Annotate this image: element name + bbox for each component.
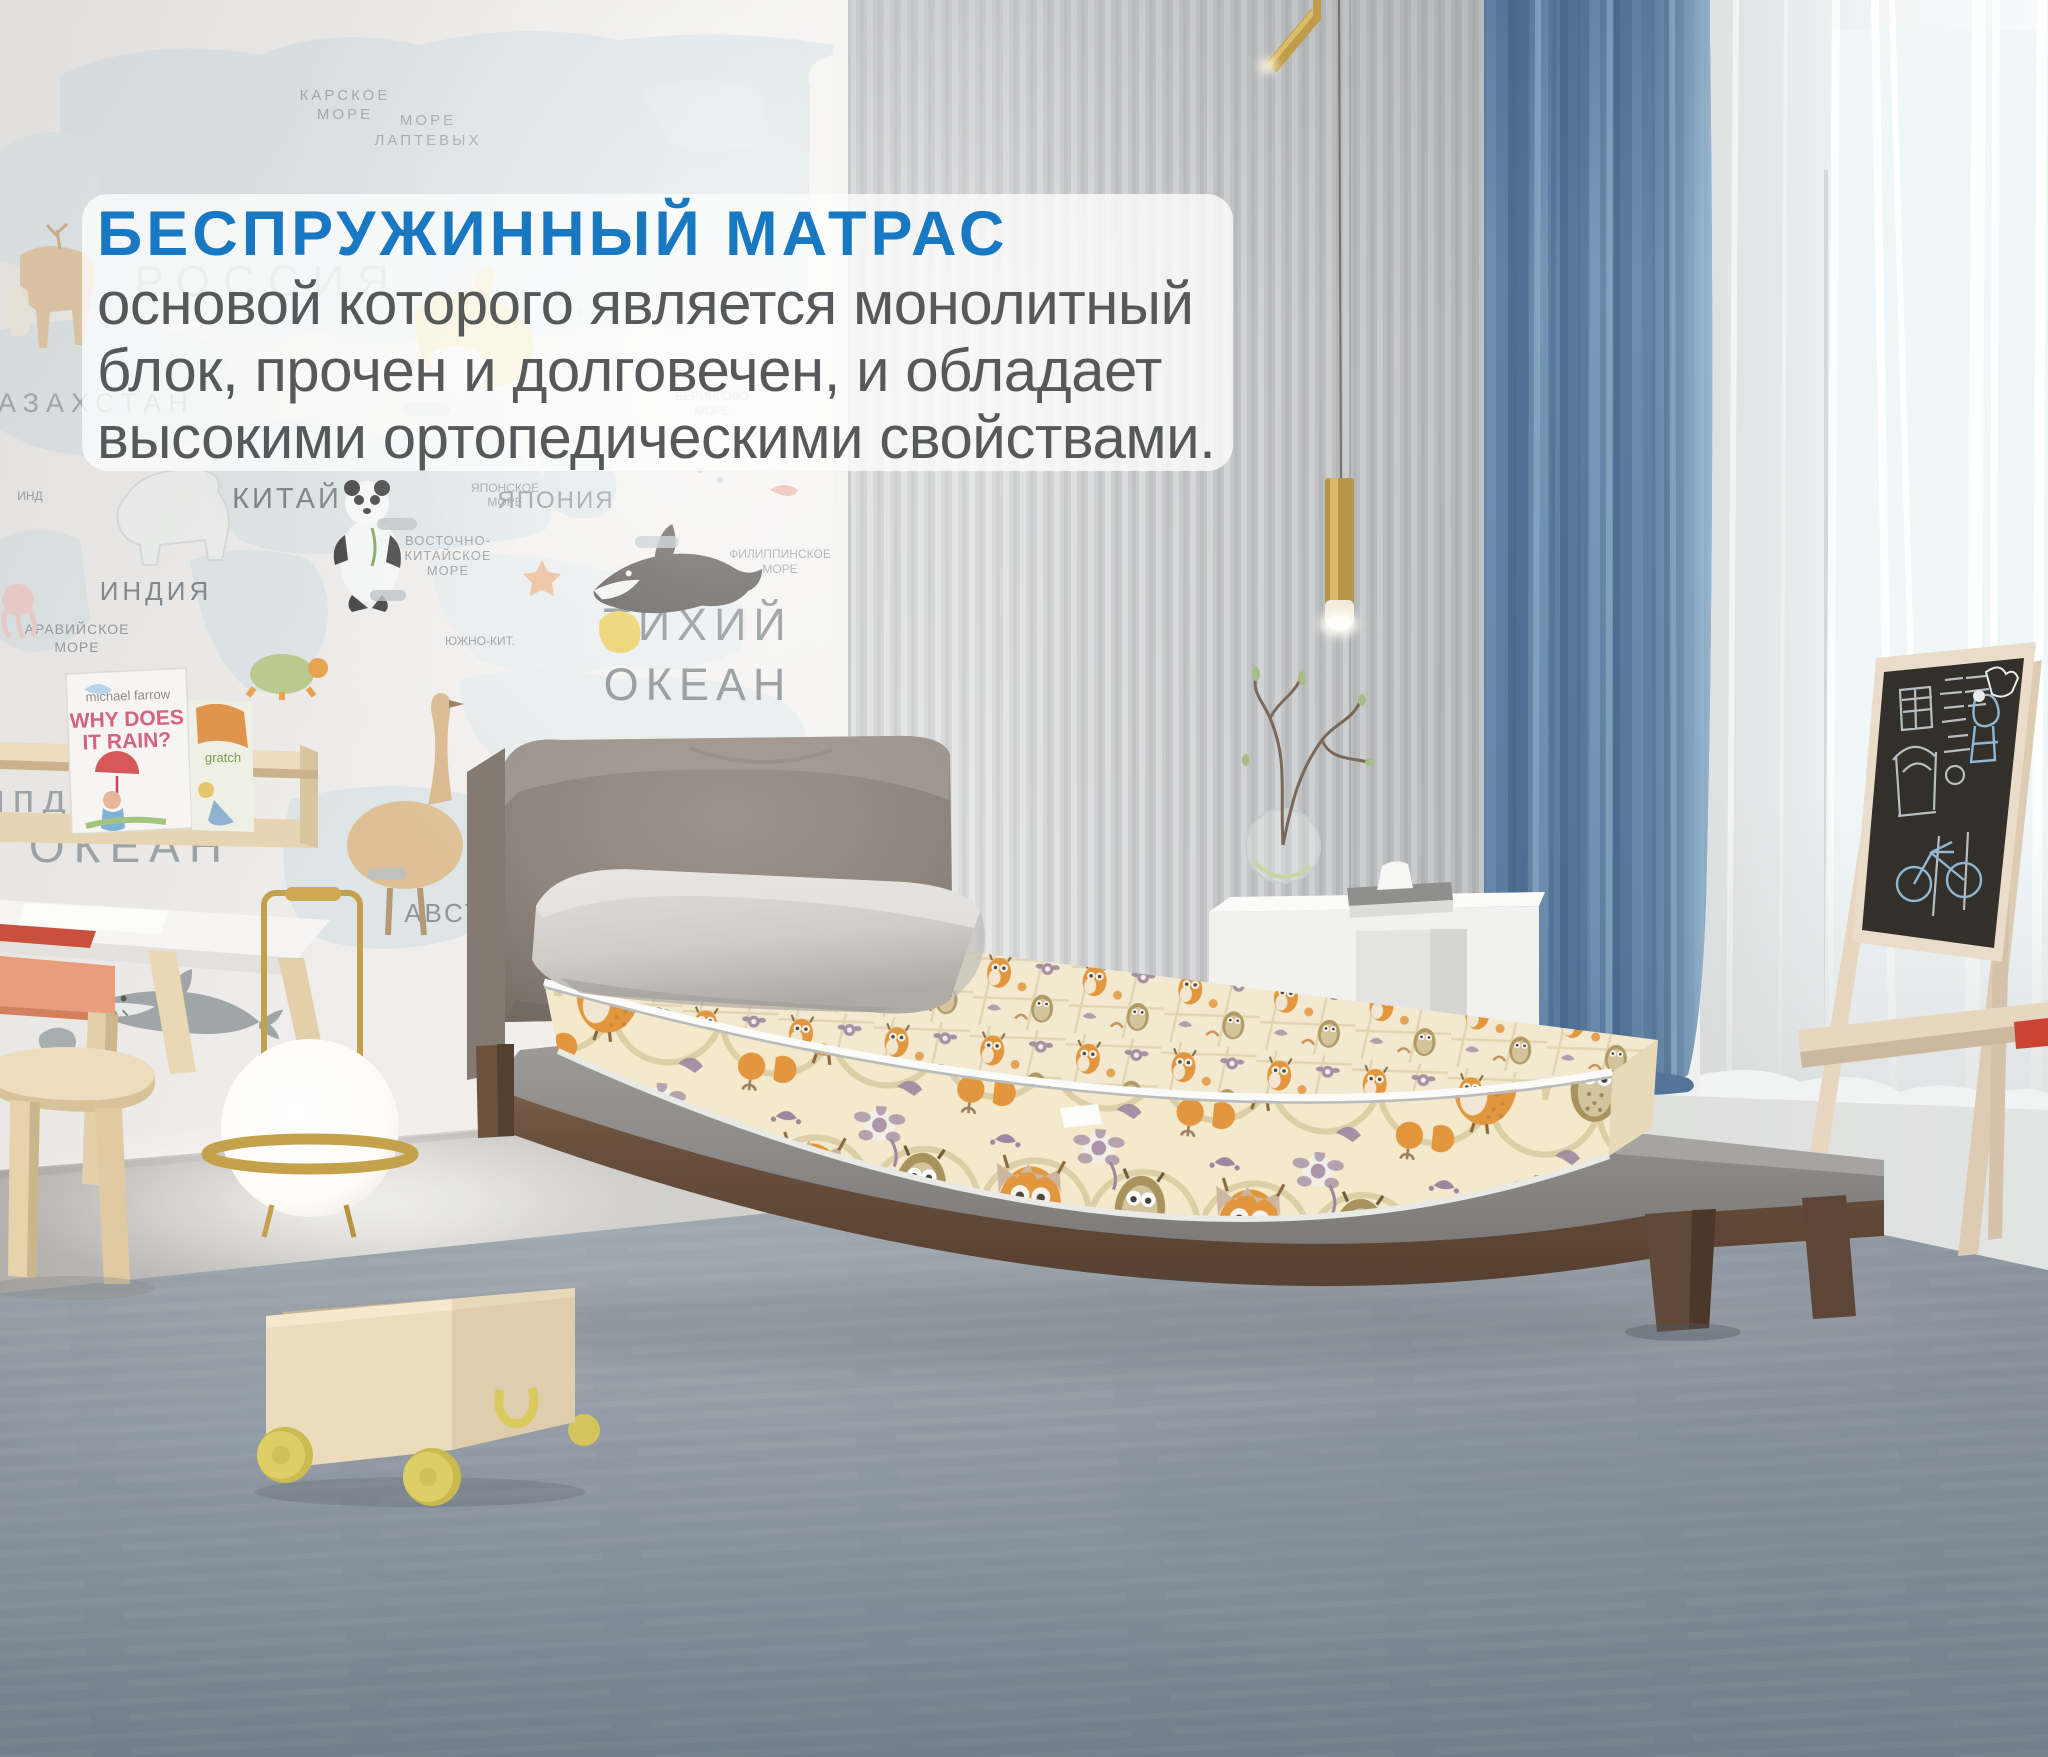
- svg-text:IT RAIN?: IT RAIN?: [82, 728, 171, 754]
- svg-text:gratch: gratch: [205, 750, 241, 765]
